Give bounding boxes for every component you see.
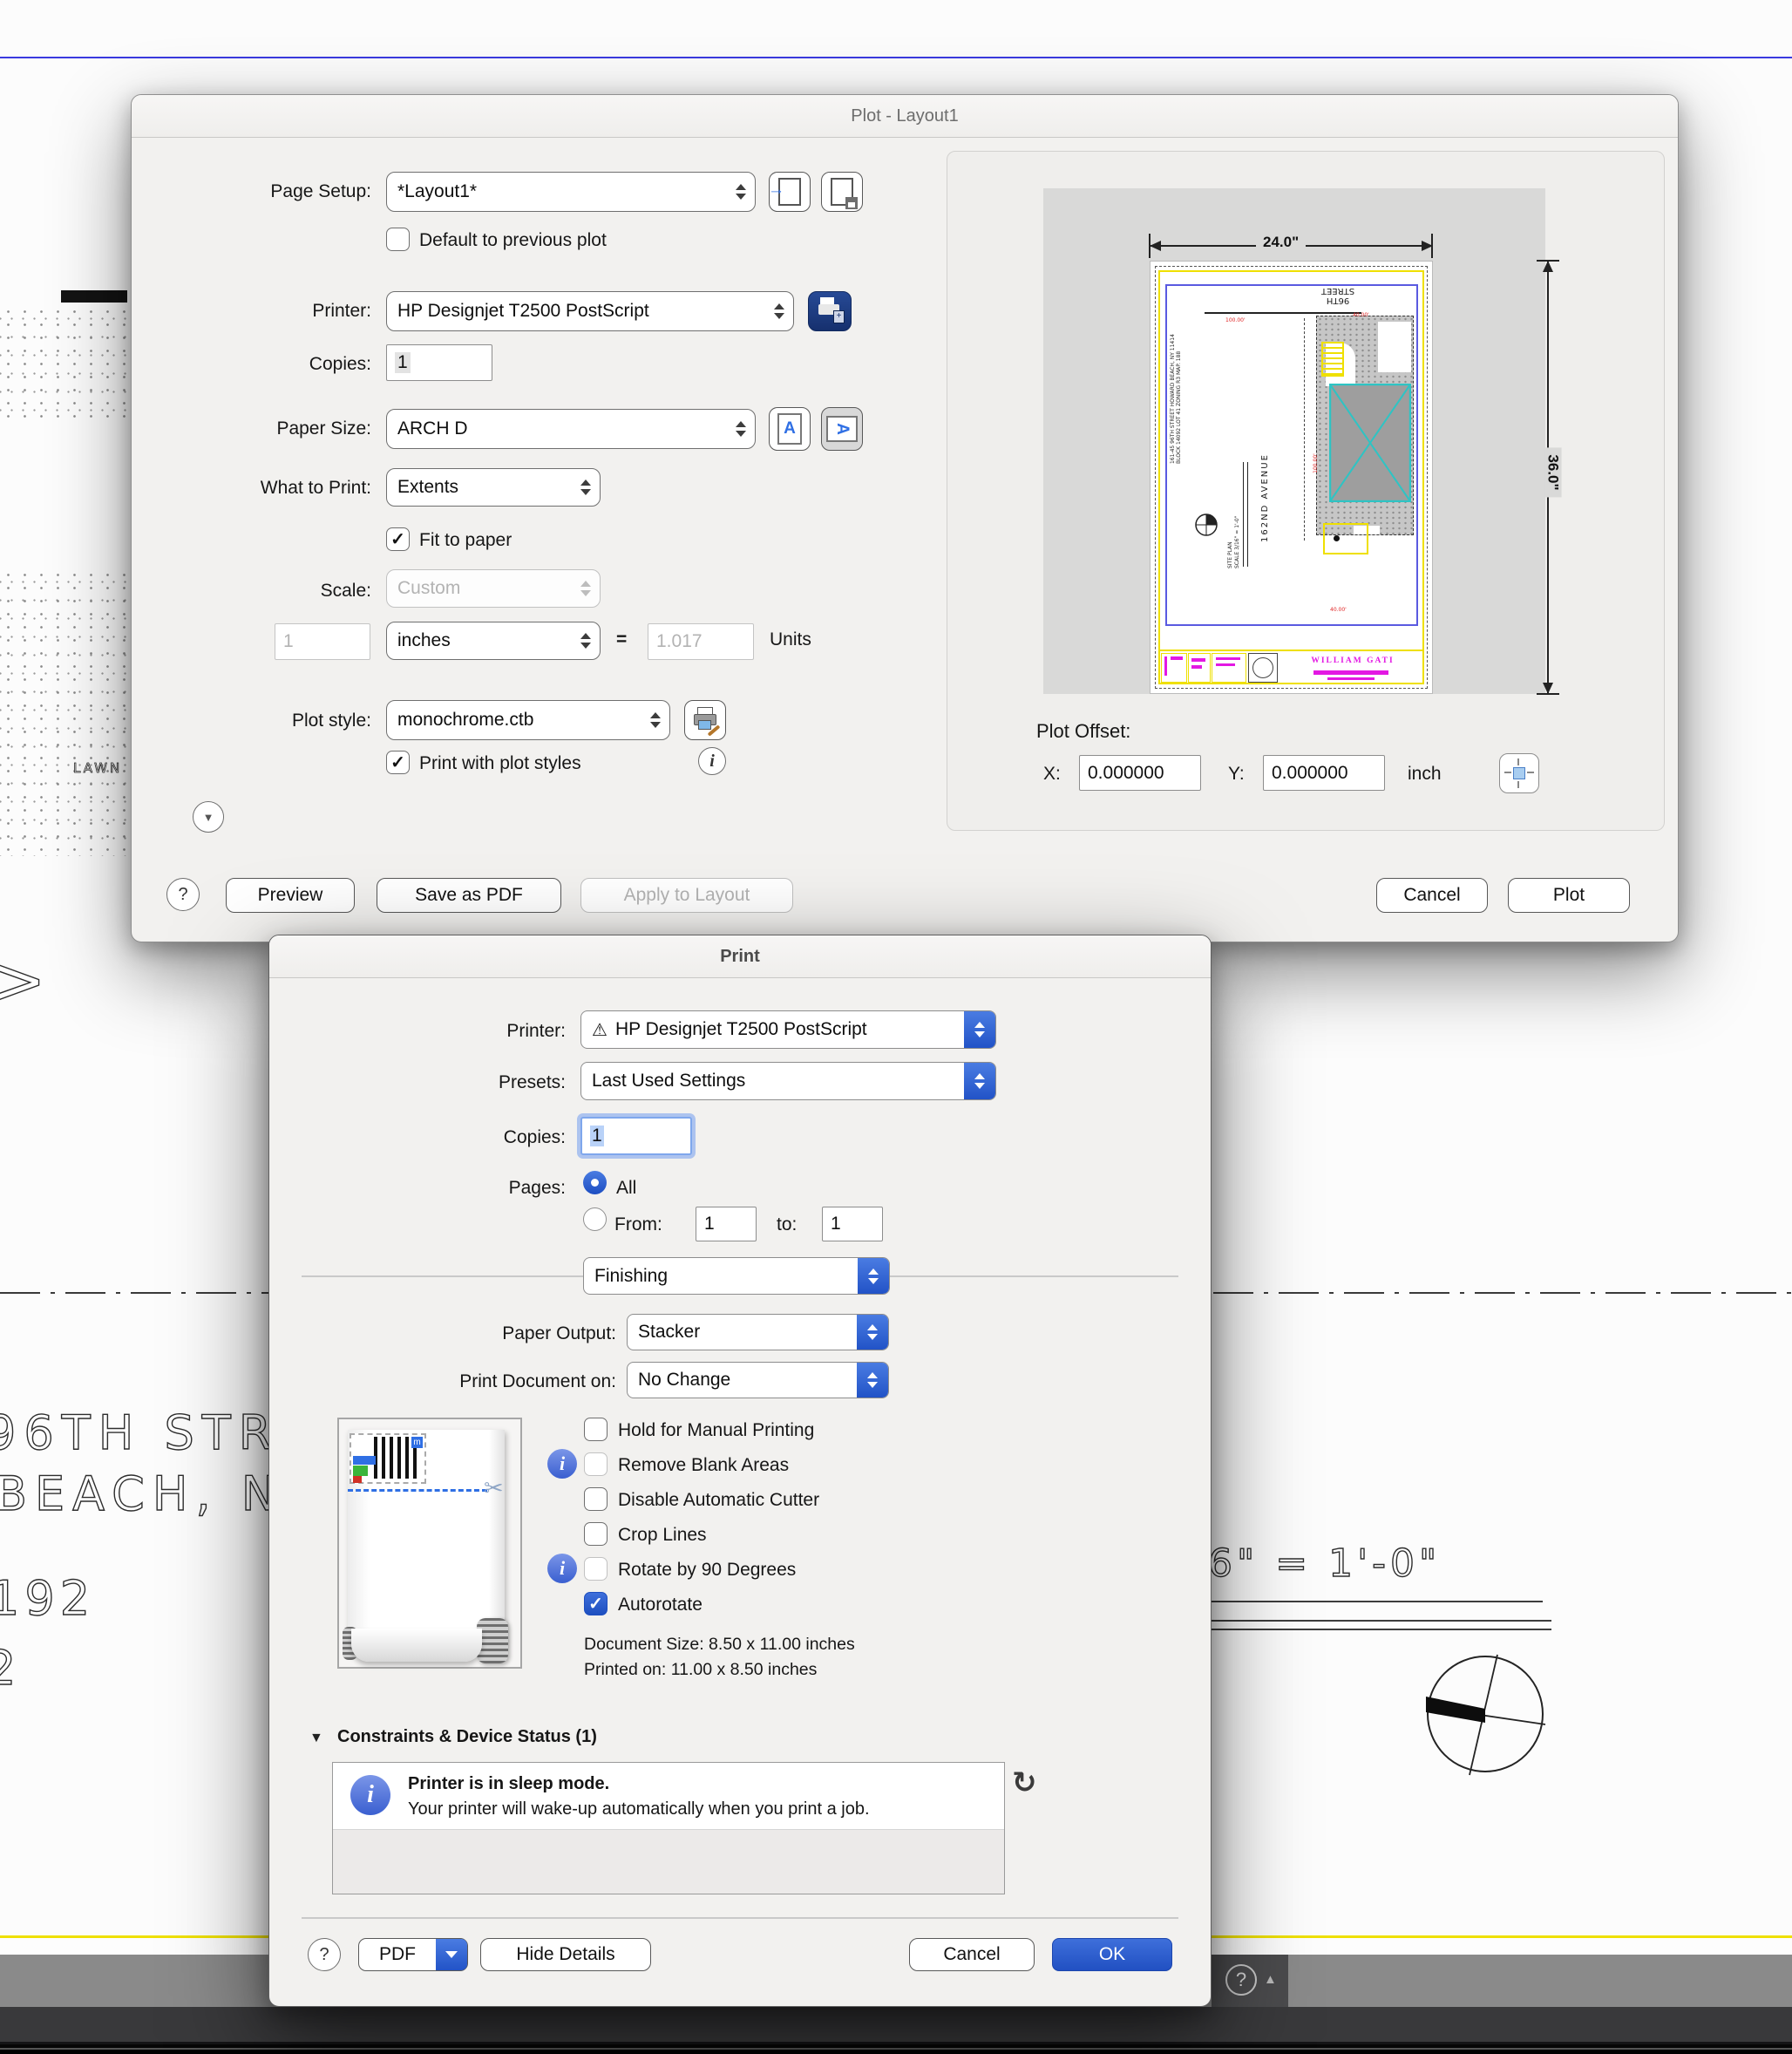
copies-value: 1 (395, 352, 411, 373)
cad-hatch-upper (0, 305, 131, 420)
presets-label: Presets: (499, 1072, 566, 1093)
scale-result-field: 1.017 (648, 623, 754, 660)
printer-plus-icon: + (818, 303, 841, 320)
portrait-orientation-button[interactable]: A (769, 407, 811, 451)
rotate-90-checkbox (584, 1557, 608, 1581)
expand-options-button[interactable]: ▼ (193, 801, 224, 833)
cad-dashdot-right (1213, 1292, 1792, 1294)
paper-size-label: Paper Size: (276, 418, 371, 439)
status-info-icon: i (350, 1775, 390, 1815)
apply-to-layout-button: Apply to Layout (580, 878, 793, 913)
paper-output-label: Paper Output: (502, 1323, 616, 1344)
pages-from-radio[interactable] (583, 1207, 607, 1231)
print-with-plot-styles-checkbox[interactable]: ✓ (386, 751, 410, 774)
hide-details-button[interactable]: Hide Details (480, 1938, 651, 1971)
plot-preview-panel: 24.0" 36.0" 96TH STREET (947, 151, 1665, 831)
pages-all-label: All (616, 1178, 636, 1199)
crop-lines-checkbox[interactable] (584, 1522, 608, 1546)
print-doc-value: No Change (638, 1370, 857, 1391)
printer-dropdown[interactable]: HP Designjet T2500 PostScript (386, 291, 794, 331)
save-page-icon (831, 178, 853, 206)
page-setup-dropdown[interactable]: *Layout1* (386, 172, 756, 212)
taskbar-help-tile[interactable]: ? ▲ (1212, 1955, 1288, 2007)
disclosure-triangle-icon: ▼ (203, 811, 214, 824)
popup-chevrons-icon (857, 1363, 888, 1398)
plot-dialog-titlebar[interactable]: Plot - Layout1 (132, 95, 1678, 138)
pages-from-value: 1 (704, 1214, 715, 1234)
plot-style-value: monochrome.ctb (397, 710, 643, 731)
print-doc-popup[interactable]: No Change (627, 1362, 889, 1398)
preview-stairs (1321, 342, 1344, 377)
cad-black-bar (61, 290, 127, 303)
apply-to-layout-label: Apply to Layout (624, 885, 750, 906)
blue-guide-line (0, 57, 1792, 58)
chevron-updown-icon (580, 633, 591, 649)
scale-note: 6" = 1'-0" (1208, 1541, 1441, 1586)
fit-to-paper-label: Fit to paper (419, 530, 512, 551)
scale-underline-3 (1210, 1629, 1551, 1630)
edit-plot-style-button[interactable] (684, 700, 726, 740)
y-offset-value: 0.000000 (1272, 763, 1348, 784)
status-row[interactable]: i Printer is in sleep mode. Your printer… (333, 1763, 1004, 1830)
print-printer-value: HP Designjet T2500 PostScript (615, 1019, 964, 1040)
printer-label: Printer: (312, 301, 371, 322)
preview-paper: 96TH STREET 161-45 96TH STREET HOWARD BE… (1150, 261, 1433, 694)
chevron-updown-icon (650, 712, 661, 728)
constraints-header[interactable]: Constraints & Device Status (1) (337, 1727, 597, 1747)
equals-sign: = (616, 629, 627, 650)
bottom-divider (302, 1917, 1178, 1919)
taskbar-black-edge (0, 2042, 1792, 2054)
save-as-pdf-label: Save as PDF (415, 885, 523, 906)
chevron-updown-icon (774, 303, 784, 319)
taskbar-up-arrow-icon[interactable]: ▲ (1264, 1972, 1277, 1987)
section-popup[interactable]: Finishing (583, 1257, 890, 1295)
pages-all-radio[interactable] (583, 1171, 607, 1194)
screen: LAWN > 96TH STRE BEACH, NY 192 2 6" = 1'… (0, 0, 1792, 2054)
popup-chevrons-icon (964, 1063, 995, 1099)
hold-manual-printing-checkbox[interactable] (584, 1418, 608, 1441)
preview-mini-compass (1194, 513, 1218, 537)
plot-button[interactable]: Plot (1508, 878, 1630, 913)
y-offset-label: Y: (1228, 764, 1245, 785)
taskbar-charcoal (0, 2007, 1792, 2042)
landscape-orientation-button[interactable]: A (821, 407, 863, 451)
chevron-updown-icon (580, 479, 591, 495)
scale-underline-1 (1210, 1601, 1543, 1602)
pdf-menu-button[interactable]: PDF (358, 1938, 468, 1971)
printer-warning-icon: ⚠ (592, 1019, 608, 1041)
lawn-label: LAWN (73, 760, 122, 776)
print-printer-popup[interactable]: ⚠ HP Designjet T2500 PostScript (580, 1010, 996, 1049)
number-192: 192 (0, 1571, 95, 1626)
paper-roll-preview: m ✂ (337, 1418, 522, 1669)
preview-title-block: WILLIAM GATI (1158, 651, 1424, 684)
import-page-icon: → (778, 178, 801, 206)
y-offset-field[interactable]: 0.000000 (1263, 755, 1385, 791)
scale-label: Scale: (321, 581, 371, 602)
status-title: Printer is in sleep mode. (408, 1774, 609, 1794)
center-plot-icon (1506, 760, 1532, 786)
x-offset-label: X: (1043, 764, 1061, 785)
print-help-button[interactable]: ? (308, 1938, 341, 1971)
fit-to-paper-checkbox[interactable]: ✓ (386, 527, 410, 551)
scale-number-field: 1 (275, 623, 370, 660)
checkmark: ✓ (390, 528, 405, 550)
roll-curl (351, 1629, 482, 1662)
printer-value: HP Designjet T2500 PostScript (397, 301, 767, 322)
print-ok-label: OK (1099, 1944, 1125, 1965)
print-copies-value: 1 (590, 1126, 604, 1146)
plot-style-label: Plot style: (292, 711, 371, 731)
chevron-updown-icon (736, 184, 746, 200)
plot-button-label: Plot (1553, 885, 1585, 906)
pages-to-field[interactable]: 1 (822, 1207, 883, 1241)
offset-unit-label: inch (1408, 764, 1442, 785)
preview-button-label: Preview (258, 885, 323, 906)
pages-label: Pages: (509, 1178, 566, 1199)
print-copies-label: Copies: (504, 1127, 566, 1148)
print-copies-field[interactable]: 1 (580, 1117, 692, 1155)
disable-cutter-checkbox[interactable] (584, 1487, 608, 1511)
popup-chevrons-icon (858, 1258, 889, 1294)
page-setup-value: *Layout1* (397, 181, 729, 202)
preview-courtyard (1329, 384, 1411, 502)
hide-details-label: Hide Details (516, 1944, 614, 1965)
printer-edit-icon (694, 711, 716, 730)
plot-cancel-label: Cancel (1403, 885, 1460, 906)
rotate-90-label: Rotate by 90 Degrees (618, 1560, 796, 1581)
print-ok-button[interactable]: OK (1052, 1938, 1172, 1971)
x-offset-value: 0.000000 (1088, 763, 1164, 784)
plot-style-dropdown[interactable]: monochrome.ctb (386, 700, 670, 740)
section-divider-right (890, 1275, 1178, 1277)
pages-from-label: From: (614, 1214, 662, 1235)
autorotate-label: Autorotate (618, 1595, 703, 1615)
width-dimension-label: 24.0" (1256, 234, 1306, 251)
plot-help-button[interactable]: ? (166, 878, 200, 911)
device-status-box: i Printer is in sleep mode. Your printer… (332, 1762, 1005, 1894)
print-dialog-titlebar[interactable]: Print (269, 935, 1211, 978)
remove-blank-areas-label: Remove Blank Areas (618, 1455, 789, 1476)
popup-chevrons-icon (964, 1011, 995, 1048)
presets-value: Last Used Settings (592, 1071, 964, 1092)
scale-underline-2 (1210, 1620, 1551, 1622)
scale-value: Custom (397, 578, 574, 599)
scale-result-value: 1.017 (656, 631, 703, 652)
autorotate-checkbox[interactable]: ✓ (584, 1592, 608, 1615)
remove-blank-areas-checkbox (584, 1452, 608, 1476)
print-printer-label: Printer: (506, 1021, 566, 1042)
refresh-status-icon[interactable]: ↻ (1012, 1765, 1037, 1800)
document-size-text: Document Size: 8.50 x 11.00 inches (584, 1635, 855, 1655)
constraints-disclosure-icon[interactable]: ▼ (309, 1731, 323, 1746)
preview-button[interactable]: Preview (226, 878, 355, 913)
print-cancel-label: Cancel (943, 1944, 1000, 1965)
crop-lines-label: Crop Lines (618, 1525, 707, 1546)
north-arrow-compass (1419, 1648, 1555, 1780)
cad-dashdot-left (0, 1292, 268, 1294)
rotate-90-info-icon[interactable]: i (547, 1554, 577, 1583)
preview-yellow-room (1323, 523, 1368, 554)
number-2: 2 (0, 1641, 16, 1696)
plot-style-info-icon[interactable]: i (698, 747, 726, 775)
chevron-updown-icon (580, 581, 591, 596)
disable-cutter-label: Disable Automatic Cutter (618, 1490, 819, 1511)
print-doc-label: Print Document on: (459, 1371, 616, 1392)
preview-street-text: 96TH STREET (1281, 286, 1395, 305)
preview-avenue-text: 162ND AVENUE (1260, 411, 1270, 542)
presets-popup[interactable]: Last Used Settings (580, 1062, 996, 1100)
pdf-menu-cap[interactable] (436, 1939, 467, 1970)
print-with-plot-styles-label: Print with plot styles (419, 753, 581, 774)
plot-dialog-title: Plot - Layout1 (851, 106, 958, 126)
plot-dialog: Plot - Layout1 Page Setup: *Layout1* → D… (131, 94, 1679, 942)
copies-label: Copies: (309, 354, 371, 375)
add-printer-button[interactable]: + (808, 291, 852, 331)
landscape-page-icon: A (826, 416, 858, 442)
cut-line (348, 1489, 487, 1492)
plot-cancel-button[interactable]: Cancel (1376, 878, 1488, 913)
default-previous-plot-label: Default to previous plot (419, 230, 607, 251)
paper-output-popup[interactable]: Stacker (627, 1314, 889, 1350)
preview-siteplan-text: SITE PLAN SCALE 3/16" = 1'-0" (1227, 464, 1241, 568)
height-dimension-label: 36.0" (1544, 447, 1562, 497)
pages-from-field[interactable]: 1 (696, 1207, 757, 1241)
remove-blank-info-icon[interactable]: i (547, 1449, 577, 1479)
what-to-print-label: What to Print: (261, 478, 371, 499)
paper-output-value: Stacker (638, 1322, 857, 1343)
hold-manual-printing-label: Hold for Manual Printing (618, 1420, 814, 1441)
what-to-print-dropdown[interactable]: Extents (386, 468, 601, 507)
print-cancel-button[interactable]: Cancel (909, 1938, 1035, 1971)
cad-hatch-lower (0, 568, 131, 856)
scale-unit-dropdown[interactable]: inches (386, 622, 601, 660)
printed-on-text: Printed on: 11.00 x 8.50 inches (584, 1660, 817, 1680)
paper-size-value: ARCH D (397, 418, 729, 439)
print-dialog: Print Printer: ⚠ HP Designjet T2500 Post… (268, 935, 1212, 2007)
roll-thumbnail: m (350, 1433, 426, 1484)
popup-chevrons-icon (857, 1315, 888, 1350)
units-label: Units (770, 629, 811, 650)
save-as-pdf-button[interactable]: Save as PDF (377, 878, 561, 913)
paper-size-dropdown[interactable]: ARCH D (386, 409, 756, 449)
taskbar-help-icon[interactable]: ? (1225, 1964, 1257, 1996)
center-plot-button[interactable] (1499, 753, 1539, 793)
checkmark: ✓ (588, 1593, 603, 1615)
section-value: Finishing (594, 1266, 858, 1287)
x-offset-field[interactable]: 0.000000 (1079, 755, 1201, 791)
copies-field[interactable]: 1 (386, 344, 492, 381)
pages-to-value: 1 (831, 1214, 841, 1234)
scissors-icon: ✂ (484, 1475, 504, 1502)
print-dialog-title: Print (720, 947, 760, 967)
save-page-setup-button[interactable] (821, 172, 863, 212)
chevron-updown-icon (736, 421, 746, 437)
scale-dropdown: Custom (386, 569, 601, 608)
preview-architect-name: WILLIAM GATI (1287, 656, 1418, 665)
pdf-label: PDF (359, 1939, 436, 1970)
what-to-print-value: Extents (397, 477, 574, 498)
checkmark: ✓ (390, 752, 405, 773)
page-setup-label: Page Setup: (270, 181, 371, 202)
scale-number-value: 1 (283, 631, 294, 652)
pages-to-label: to: (777, 1214, 797, 1235)
scale-unit-value: inches (397, 630, 574, 651)
section-divider-left (302, 1275, 584, 1277)
cad-chevron-mark: > (0, 940, 46, 1021)
preview-address-block: 161-45 96TH STREET HOWARD BEACH, NY 1141… (1170, 316, 1187, 464)
import-page-setup-button[interactable]: → (769, 172, 811, 212)
default-previous-plot-checkbox[interactable] (386, 228, 410, 251)
preview-canvas: 24.0" 36.0" 96TH STREET (1043, 188, 1545, 694)
plot-offset-label: Plot Offset: (1036, 720, 1130, 743)
portrait-page-icon: A (777, 413, 802, 445)
status-description: Your printer will wake-up automatically … (408, 1799, 870, 1819)
